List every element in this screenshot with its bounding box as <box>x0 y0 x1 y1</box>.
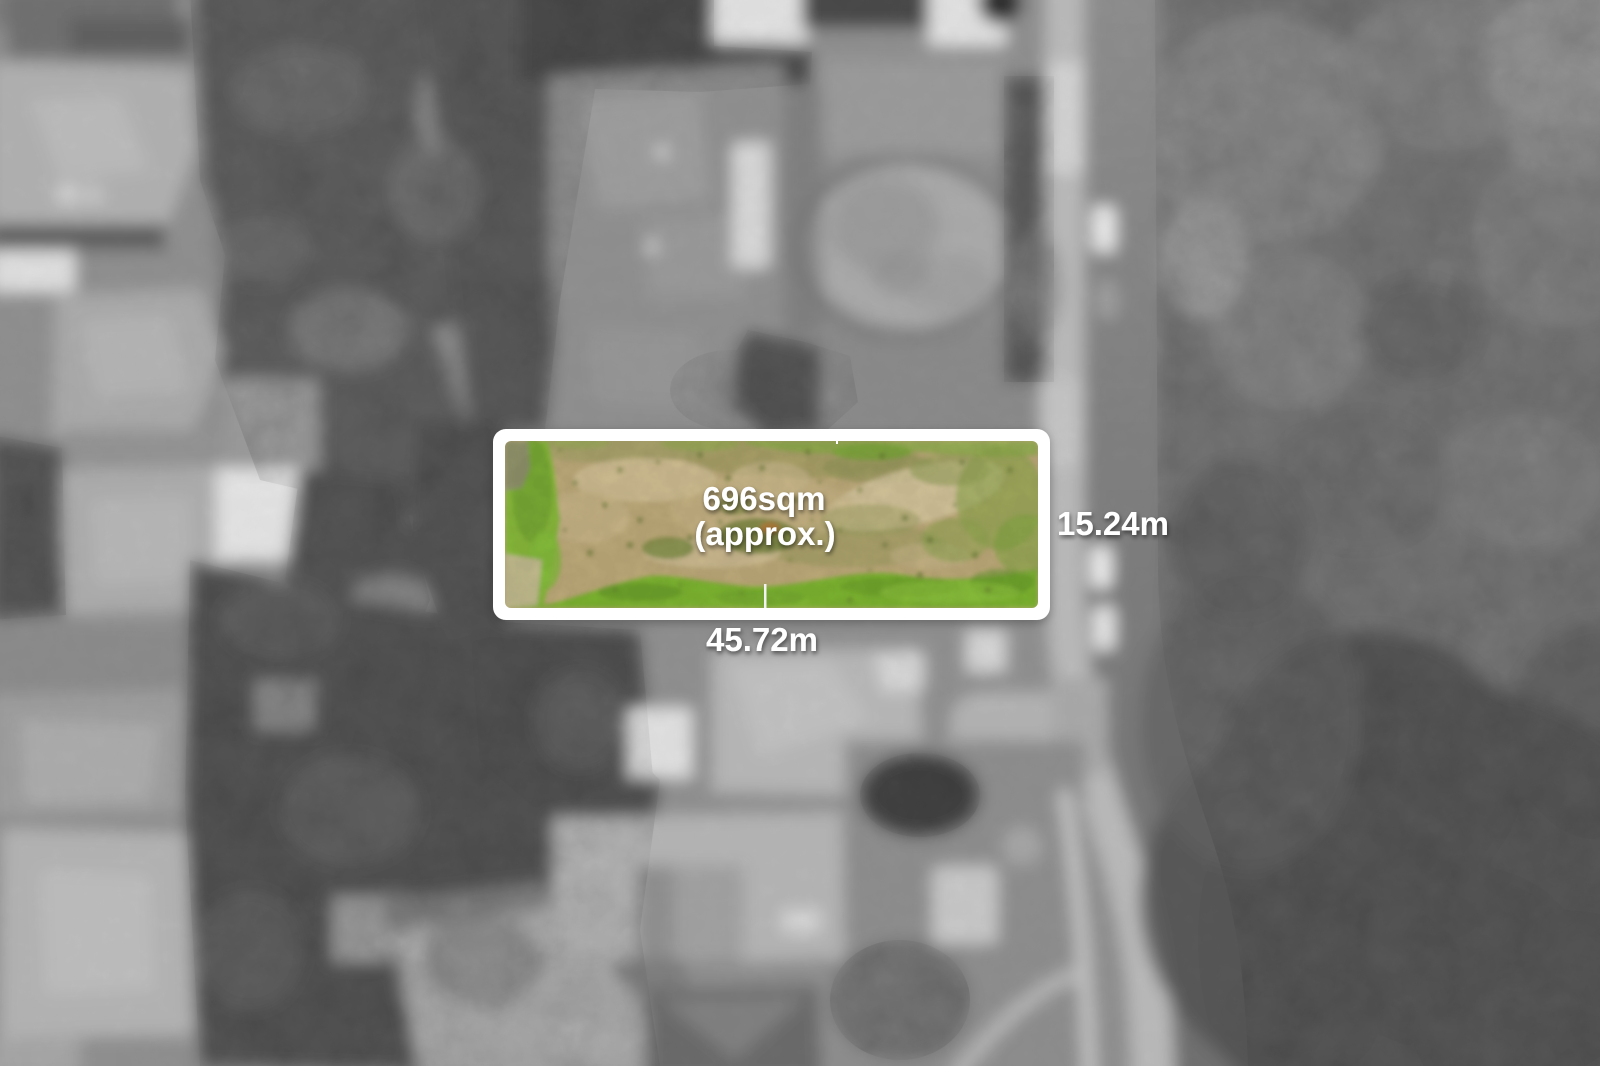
svg-text:(approx.): (approx.) <box>694 515 835 552</box>
svg-text:45.72m: 45.72m <box>706 621 818 658</box>
svg-text:15.24m: 15.24m <box>1057 505 1169 542</box>
svg-text:696sqm: 696sqm <box>703 480 826 517</box>
